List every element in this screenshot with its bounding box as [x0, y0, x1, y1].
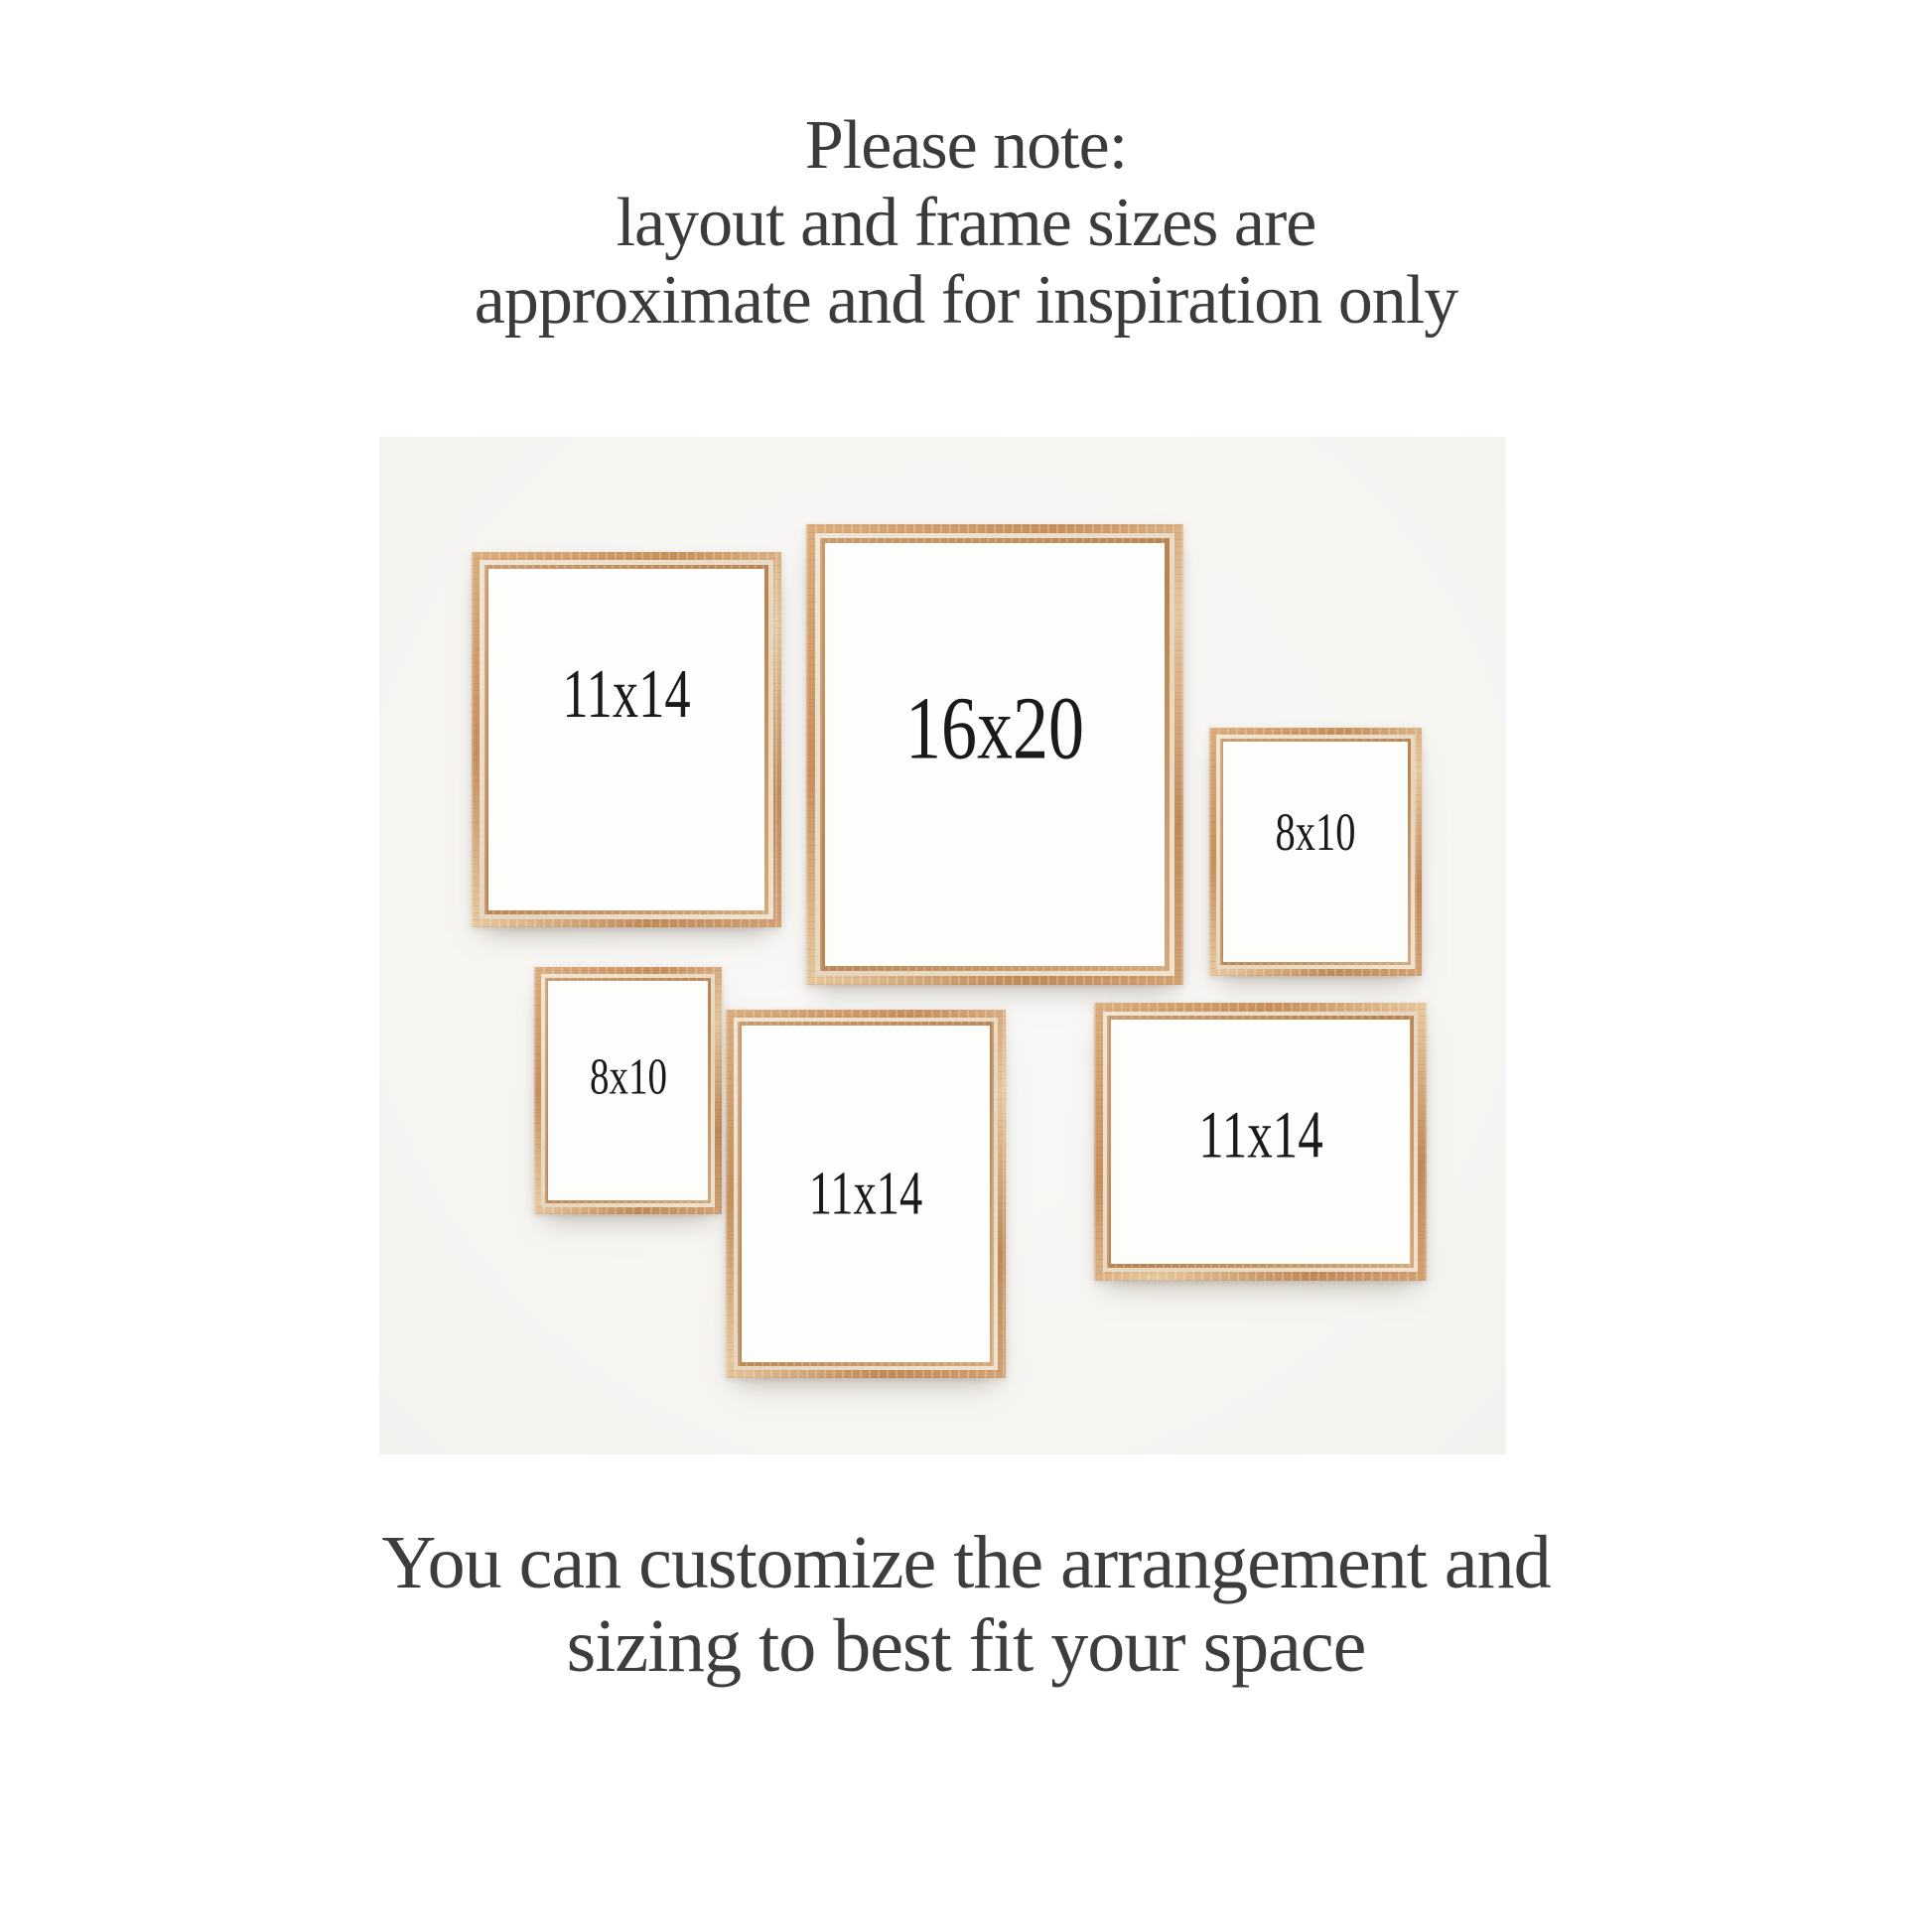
frame-inner-lip: 8x10 — [545, 978, 711, 1203]
frame-paper: 11x14 — [1111, 1020, 1410, 1264]
page: { "note": { "lines": [ "Please note:", "… — [0, 0, 1932, 1932]
frame-inner-lip: 8x10 — [1220, 739, 1411, 965]
frame-paper: 16x20 — [825, 543, 1165, 966]
frame-size-label: 11x14 — [809, 1159, 923, 1229]
note-line-1: Please note: — [0, 107, 1932, 185]
frame-size-label: 16x20 — [905, 678, 1084, 780]
customize-note-line-2: sizing to best fit your space — [0, 1604, 1932, 1688]
frame-paper: 8x10 — [548, 981, 708, 1200]
frame-inner-lip: 11x14 — [738, 1022, 994, 1366]
frame-11x14-bottom-center: 11x14 — [726, 1010, 1006, 1378]
frame-paper: 8x10 — [1223, 742, 1408, 962]
customize-note-line-1: You can customize the arrangement and — [0, 1521, 1932, 1604]
frame-inner-lip: 11x14 — [484, 565, 768, 914]
frame-inner-lip: 11x14 — [1107, 1016, 1414, 1268]
frame-11x14-top-left: 11x14 — [472, 552, 781, 927]
gallery-wall-mockup: 11x14 16x20 8x10 8x10 — [379, 437, 1506, 1454]
frame-size-label: 8x10 — [590, 1048, 667, 1107]
frame-whitewash-band: 16x20 — [815, 533, 1174, 976]
note-heading: Please note: layout and frame sizes are … — [0, 107, 1932, 340]
frame-paper: 11x14 — [488, 569, 764, 910]
frame-whitewash-band: 11x14 — [1103, 1012, 1418, 1272]
frame-16x20-top-center: 16x20 — [806, 524, 1183, 985]
frame-whitewash-band: 11x14 — [734, 1018, 998, 1370]
frame-size-label: 8x10 — [1276, 801, 1356, 863]
frame-size-label: 11x14 — [1198, 1095, 1323, 1173]
frame-inner-lip: 16x20 — [820, 538, 1170, 971]
frame-whitewash-band: 8x10 — [541, 974, 715, 1207]
customize-note: You can customize the arrangement and si… — [0, 1521, 1932, 1688]
note-line-2: layout and frame sizes are — [0, 185, 1932, 262]
frame-size-label: 11x14 — [562, 655, 690, 735]
frame-whitewash-band: 8x10 — [1216, 735, 1415, 969]
frame-whitewash-band: 11x14 — [480, 560, 773, 919]
frame-8x10-middle-right: 8x10 — [1209, 728, 1422, 976]
frame-11x14-bottom-right-landscape: 11x14 — [1094, 1003, 1427, 1281]
note-line-3: approximate and for inspiration only — [0, 262, 1932, 340]
frame-8x10-bottom-left: 8x10 — [534, 967, 722, 1214]
frame-paper: 11x14 — [742, 1026, 990, 1362]
